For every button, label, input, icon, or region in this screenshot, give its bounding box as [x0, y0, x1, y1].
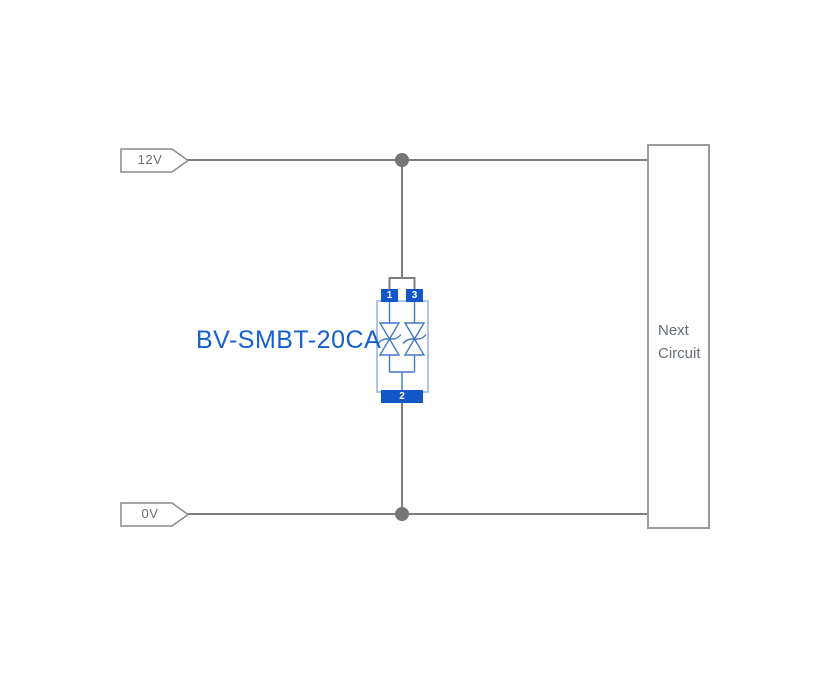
junction-dot-bottom: [395, 507, 409, 521]
pin-label-3: 3: [406, 289, 423, 302]
schematic-drawing: [0, 0, 832, 675]
component-label: BV-SMBT-20CA: [196, 326, 381, 355]
next-circuit-label: Next Circuit: [658, 319, 701, 365]
pin-label-1: 1: [381, 289, 398, 302]
next-circuit-line1: Next: [658, 319, 701, 342]
circuit-diagram: 12V 0V BV-SMBT-20CA Next Circuit 1 3 2: [0, 0, 832, 675]
pin-label-2: 2: [381, 390, 423, 403]
rail-label-0v: 0V: [121, 503, 179, 525]
junction-dot-top: [395, 153, 409, 167]
rail-label-12v: 12V: [121, 149, 179, 171]
next-circuit-line2: Circuit: [658, 342, 701, 365]
